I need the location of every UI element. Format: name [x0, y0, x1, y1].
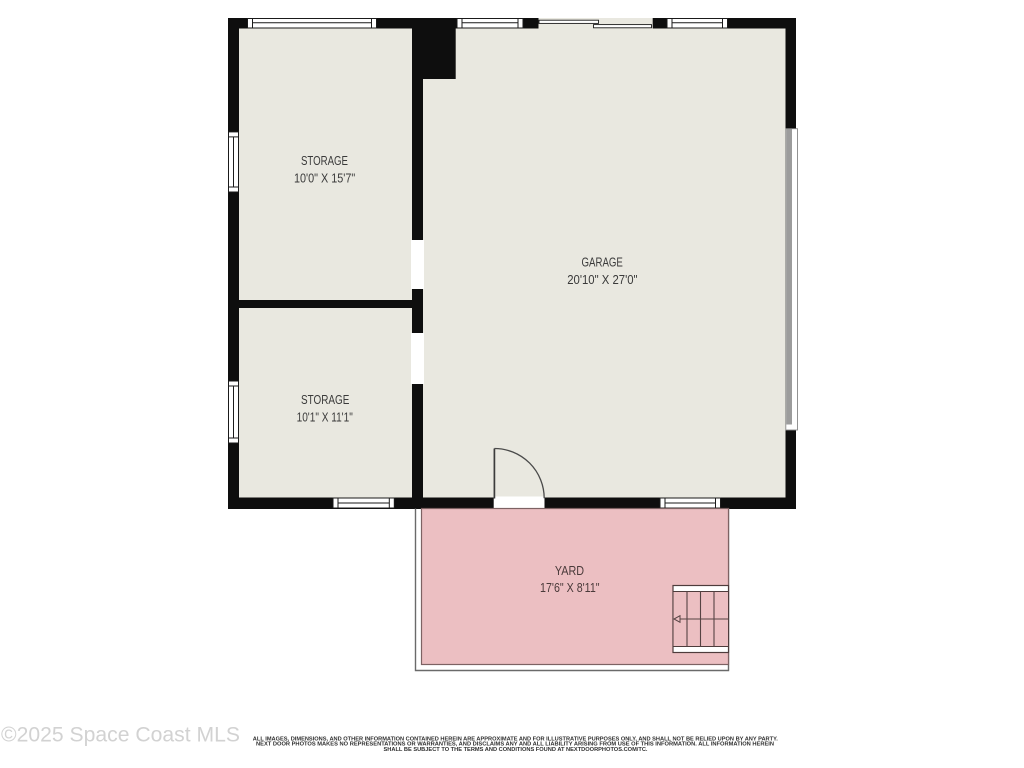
svg-text:20'10" X 27'0": 20'10" X 27'0"	[567, 272, 637, 287]
svg-text:SHALL BE SUBJECT TO THE TERMS: SHALL BE SUBJECT TO THE TERMS AND CONDIT…	[384, 747, 649, 753]
svg-text:GARAGE: GARAGE	[582, 254, 623, 269]
svg-text:©2025 Space Coast MLS: ©2025 Space Coast MLS	[1, 723, 240, 747]
svg-text:STORAGE: STORAGE	[301, 153, 348, 168]
svg-text:10'0" X 15'7": 10'0" X 15'7"	[294, 171, 355, 186]
svg-text:10'1" X 11'1": 10'1" X 11'1"	[297, 410, 353, 425]
svg-text:STORAGE: STORAGE	[301, 392, 349, 407]
svg-text:17'6" X 8'11": 17'6" X 8'11"	[540, 580, 600, 595]
svg-text:YARD: YARD	[555, 563, 584, 578]
